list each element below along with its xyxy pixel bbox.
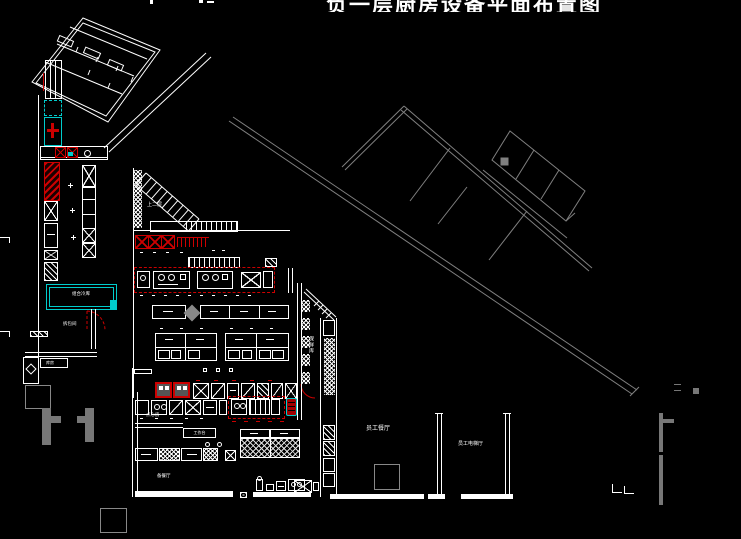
wall-stub [288,268,289,293]
column-outline [100,508,127,533]
kitchen-wall [132,368,133,497]
insulated-wall-hatch [134,170,142,228]
shelf-unit [323,441,335,456]
baseline-wall [330,494,424,499]
burner [168,274,175,281]
pipe-column [441,414,442,494]
run-divider [82,214,96,215]
appliance-top [257,476,262,481]
appliance-dial [291,482,296,487]
range-comb [177,237,209,247]
wall-unit [323,320,335,336]
undercounter-unit [158,350,170,359]
food-lift-dashed [44,100,62,116]
diagonal-linework [0,0,741,539]
storage-label: 库房 [46,360,54,366]
undercounter-unit [259,350,271,359]
burner [240,403,246,409]
serving-room-label: 备餐厅 [157,474,171,480]
range-block-red [44,162,60,201]
column-outline [25,385,51,409]
structural-column [85,408,94,442]
wall-hatch-cell [302,300,310,312]
burner [202,274,209,281]
sink-unit [241,272,261,288]
baseline-wall [428,494,445,499]
undercounter-unit [242,350,252,359]
grid-cross-mark [71,235,76,240]
floor-drain [216,368,220,372]
column-outline [374,464,400,490]
wall-cabinet [134,369,152,374]
burner-plate [180,274,186,280]
burner [154,404,160,410]
pot-symbol [205,442,210,447]
shelf-teeth [186,222,237,231]
lift-shaft-rail [50,61,51,98]
counter-unit [211,383,225,399]
ramp-wall [104,53,211,152]
elevator-hall-label: 员工电梯厅 [458,441,483,447]
shelf-unit [323,425,335,440]
cyan-fitting [68,152,73,156]
lift-shaft [45,60,62,99]
undercounter-unit [188,350,200,359]
structural-column [77,416,85,423]
pipe-column [509,414,510,494]
unpack-room-label: 拆包间 [63,322,77,328]
table-label-mark [47,234,55,235]
baseline-wall [253,492,311,497]
wall-hatch-cell [302,372,310,384]
gray-column [693,388,699,394]
sink-unit [82,228,96,243]
right-wall [320,318,321,497]
burner [140,275,146,281]
baseline-wall [135,491,233,497]
red-wall-mark [43,73,44,91]
label-strip [30,331,48,337]
gray-building-outline [229,106,639,396]
staff-dining-label: 员工餐厅 [366,426,390,432]
floor-plan-canvas[interactable]: 负一层厨房设备平面布置图 [0,0,741,539]
grid-cross-mark [68,183,73,188]
burner [212,274,219,281]
appliance-dial [297,482,302,487]
baseline-wall [461,494,513,499]
lift-cross-mark [51,123,54,138]
undercounter-unit [171,350,181,359]
counter-unit [169,400,183,415]
partition-wall [91,309,92,349]
pipe-column [505,414,506,494]
gray-wall [659,455,663,505]
stove-red [173,382,190,398]
sink-unit [44,201,58,221]
wall-hatch-cell [302,318,310,330]
shelf-teeth [189,258,239,267]
cold-room-unit [110,300,116,309]
floor-box [240,492,247,498]
sink-unit [225,450,236,461]
wall-unit [323,458,335,472]
room-wall [25,352,97,353]
burner [158,274,165,281]
cold-room-label: 组合冷库 [58,292,104,298]
fresh-store-label: 保鲜库 [308,336,314,354]
partition-wall [95,309,96,349]
floor-drain [229,368,233,372]
corner-mark [624,486,634,494]
storage-room [40,358,68,368]
gray-mark [674,384,681,391]
right-wall [336,318,337,497]
wok-range [148,235,162,249]
stove-red [155,382,172,398]
undercounter-unit [272,350,284,359]
gray-wall-stub [663,419,674,423]
dish-unit [159,448,180,461]
cook-unit [271,399,280,415]
structural-column [51,416,61,423]
pot-symbol [217,442,222,447]
right-wall [297,283,298,420]
worktable [44,223,58,248]
undercounter-unit [228,350,240,359]
burner [161,404,167,410]
run-divider [82,187,96,188]
sink-unit [82,243,96,258]
small-shelf [265,258,277,267]
wall-stub [292,268,293,293]
structural-column [42,408,51,445]
steamer-unit [286,398,297,416]
sink-unit [185,400,201,415]
worktable-label: 工作台 [184,430,215,436]
worktable [152,305,186,319]
wok-range [161,235,175,249]
appliance [266,484,274,491]
range-unit [55,147,66,158]
stairs-label: 上二层 [147,202,162,208]
wok-range [135,235,149,249]
pipe-column [437,414,438,494]
sink-unit [44,250,58,260]
shelf-unit [44,262,58,281]
room-wall [135,423,183,424]
burner-plate [222,274,228,280]
pastry-room-label: 点心房 [146,413,160,419]
corner-mark [612,484,622,493]
worktable-row [200,305,289,319]
grid-bracket [9,331,10,337]
dish-unit [203,448,218,461]
stockpot-symbol [84,150,91,157]
sink-unit [82,165,96,187]
cook-unit [263,271,273,288]
insulated-wall-hatch [324,338,335,395]
sink-unit [285,383,297,399]
floor-drain [203,368,207,372]
left-wall [38,95,39,363]
room-wall [135,427,183,428]
wall-unit [323,473,335,487]
lift-shaft-rail [55,61,56,98]
sink-unit [193,383,209,399]
run-divider [82,199,96,200]
grid-bracket [9,237,10,243]
counter-unit [219,400,227,415]
wall-hatch-cell [302,354,310,366]
grid-cross-mark [70,208,75,213]
small-unit [313,482,319,491]
